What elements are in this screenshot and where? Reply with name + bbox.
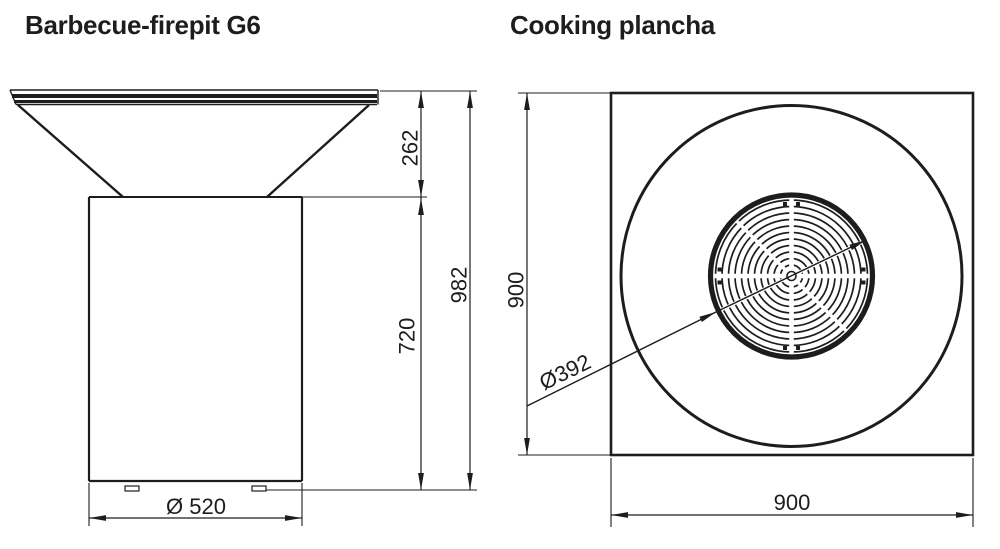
arrowhead-right — [285, 515, 302, 521]
dimension-base-height: 720 — [395, 197, 424, 490]
grate-fastener — [718, 281, 722, 285]
fire-bowl-cone — [18, 105, 369, 197]
arrowhead-down — [418, 180, 424, 197]
dimension-total-height: 982 — [447, 91, 473, 490]
arrowhead-left — [89, 515, 106, 521]
dim-label-total-height: 982 — [447, 267, 472, 304]
drawing-canvas: 262 720 982 Ø 520 — [0, 0, 1000, 549]
dim-label-base-height: 720 — [395, 318, 420, 355]
dimension-plate-width: 900 — [611, 490, 973, 518]
arrowhead-down — [467, 473, 473, 490]
leader-line-outer — [527, 312, 716, 406]
arrowhead-up — [524, 93, 530, 110]
arrowhead-down — [418, 473, 424, 490]
dim-label-grate-diameter: Ø392 — [535, 349, 594, 395]
plancha-plate-side — [10, 90, 378, 105]
grate-fastener — [783, 202, 787, 206]
arrowhead-right — [956, 512, 973, 518]
dimension-plate-depth: 900 — [504, 93, 530, 455]
bowl-right-slant — [267, 105, 369, 197]
foot-left — [125, 486, 139, 491]
dimension-base-diameter: Ø 520 — [89, 494, 302, 521]
arrowhead-down — [524, 438, 530, 455]
technical-drawing-sheet: Barbecue-firepit G6 Cooking plancha — [0, 0, 1000, 549]
arrowhead-left — [611, 512, 628, 518]
dimension-bowl-height: 262 — [398, 91, 424, 197]
grate-fastener — [783, 346, 787, 350]
bowl-left-slant — [18, 105, 123, 197]
dim-label-base-diameter: Ø 520 — [166, 494, 226, 519]
grate-fastener — [862, 281, 866, 285]
arrowhead-leader-lower — [699, 312, 716, 322]
firepit-side-view: 262 720 982 Ø 520 — [10, 90, 477, 526]
dim-label-bowl-height: 262 — [398, 130, 423, 167]
arrowhead-up — [418, 198, 424, 215]
grate-fastener — [796, 346, 800, 350]
grate-fastener — [862, 268, 866, 272]
arrowhead-up — [467, 91, 473, 108]
grate-fastener — [796, 202, 800, 206]
foot-right — [252, 486, 266, 491]
plancha-top-view: 900 900 Ø392 — [504, 93, 974, 527]
dim-label-plate-depth: 900 — [504, 272, 529, 309]
cylindrical-base — [89, 197, 302, 491]
grate-fastener — [718, 268, 722, 272]
dimension-grate-diameter: Ø392 — [527, 240, 866, 406]
arrowhead-up — [418, 91, 424, 108]
dim-label-plate-width: 900 — [774, 490, 811, 515]
